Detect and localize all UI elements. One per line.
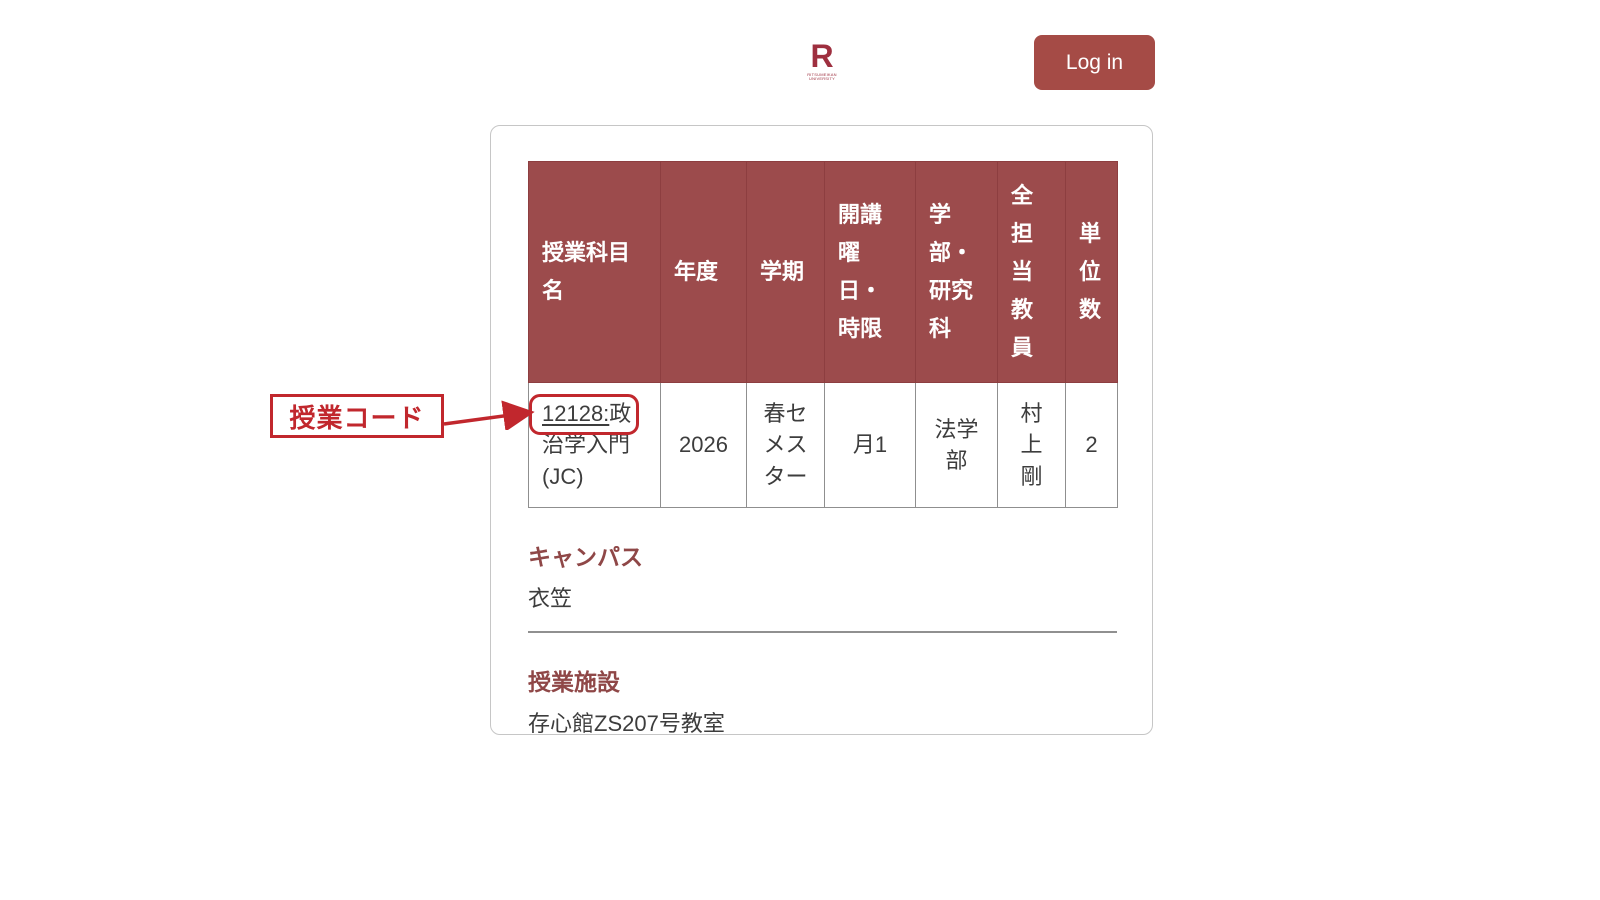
university-logo[interactable]: R RITSUMEIKAN UNIVERSITY — [798, 40, 846, 82]
semester-cell: 春セメスター — [747, 383, 825, 508]
col-header-semester: 学期 — [747, 162, 825, 383]
facility-value: 存心館ZS207号教室 — [528, 706, 1117, 735]
instructors-cell: 村上剛 — [998, 383, 1066, 508]
facility-section: 授業施設 存心館ZS207号教室 — [528, 663, 1117, 735]
campus-heading: キャンパス — [528, 538, 1117, 572]
logo-subtext: RITSUMEIKAN UNIVERSITY — [798, 73, 846, 82]
section-divider — [528, 631, 1117, 633]
col-header-course-name: 授業科目名 — [529, 162, 661, 383]
course-code-callout: 授業コード — [270, 394, 444, 438]
course-info-table: 授業科目名 年度 学期 開講曜日・時限 学部・研究科 全担当教員 単位数 121… — [528, 161, 1118, 508]
col-header-credits: 単位数 — [1066, 162, 1118, 383]
campus-section: キャンパス 衣笠 — [528, 538, 1117, 633]
course-link[interactable]: 12128:政治学入門 (JC) — [542, 401, 631, 488]
year-cell: 2026 — [661, 383, 747, 508]
syllabus-card: 授業科目名 年度 学期 開講曜日・時限 学部・研究科 全担当教員 単位数 121… — [490, 125, 1153, 735]
facility-heading: 授業施設 — [528, 663, 1117, 697]
col-header-day-period: 開講曜日・時限 — [825, 162, 916, 383]
col-header-instructors: 全担当教員 — [998, 162, 1066, 383]
credits-cell: 2 — [1066, 383, 1118, 508]
campus-value: 衣笠 — [528, 581, 1117, 613]
course-row: 12128:政治学入門 (JC) 2026 春セメスター 月1 法学部 村上剛 … — [529, 383, 1118, 508]
day-period-cell: 月1 — [825, 383, 916, 508]
login-button[interactable]: Log in — [1034, 35, 1155, 90]
course-code[interactable]: 12128: — [542, 401, 609, 426]
faculty-cell: 法学部 — [916, 383, 998, 508]
col-header-faculty: 学部・研究科 — [916, 162, 998, 383]
logo-r-letter: R — [798, 40, 846, 72]
course-code-callout-label: 授業コード — [289, 398, 424, 435]
col-header-year: 年度 — [661, 162, 747, 383]
course-name-cell: 12128:政治学入門 (JC) — [529, 383, 661, 508]
table-header-row: 授業科目名 年度 学期 開講曜日・時限 学部・研究科 全担当教員 単位数 — [529, 162, 1118, 383]
